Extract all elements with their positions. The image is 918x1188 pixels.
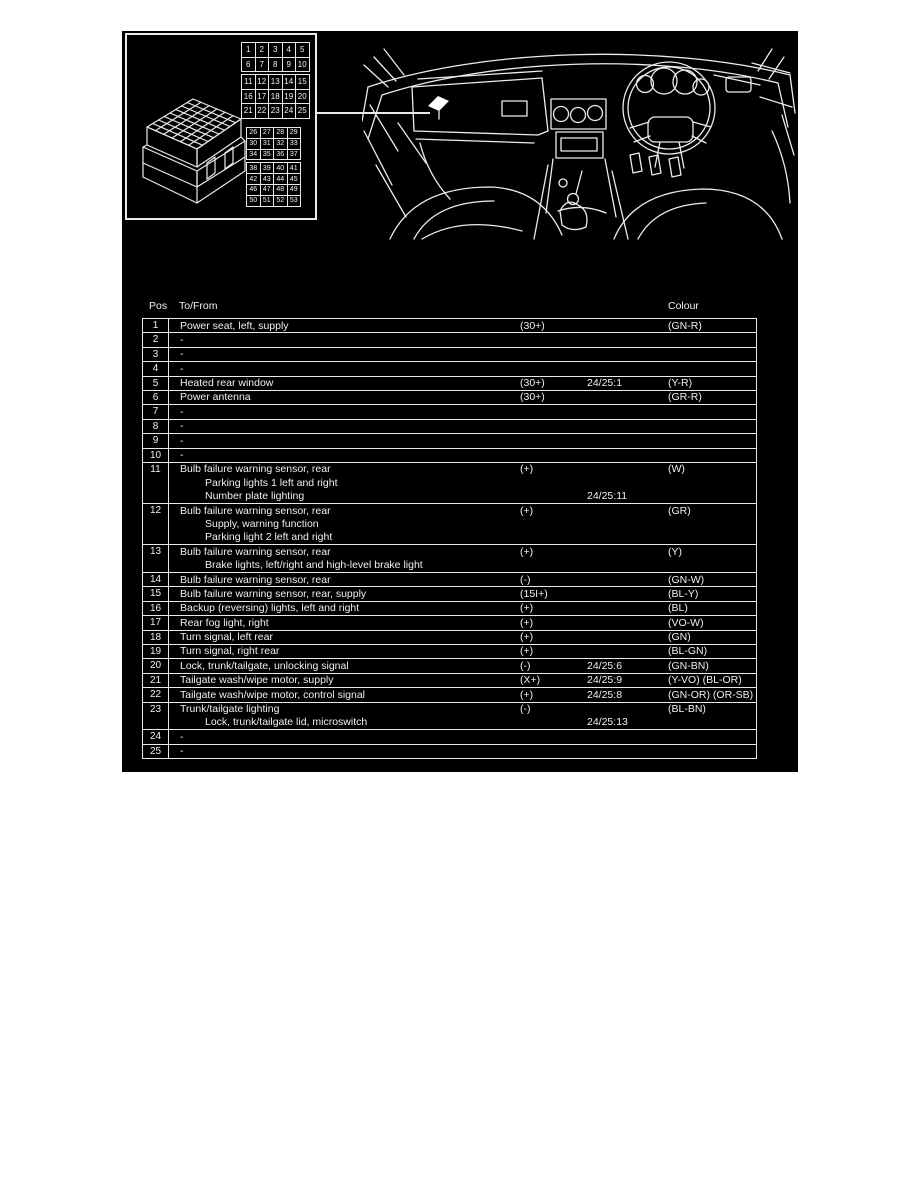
row-lines: - — [169, 348, 756, 361]
dashboard-illustration — [362, 35, 796, 241]
pos-cell: 13 — [143, 545, 169, 572]
signal-value: (-) — [520, 660, 531, 673]
wire-colour: (BL-GN) — [668, 645, 707, 658]
header-colour: Colour — [668, 300, 699, 312]
signal-value: (30+) — [520, 391, 545, 404]
pin-number-cell: 37 — [287, 149, 302, 161]
row-lines: Bulb failure warning sensor, rear, suppl… — [169, 587, 756, 600]
to-from-text: Turn signal, right rear — [180, 645, 279, 658]
pos-cell: 1 — [143, 319, 169, 332]
pin-number-cell: 3 — [268, 42, 283, 58]
row-lines: - — [169, 405, 756, 418]
wire-colour: (Y-VO) (BL-OR) — [668, 674, 742, 687]
pos-cell: 5 — [143, 377, 169, 390]
pin-grid-row: 2122232425 — [241, 103, 310, 119]
to-from-text: Tailgate wash/wipe motor, supply — [180, 674, 334, 687]
row-line: Parking lights 1 left and right — [169, 476, 756, 489]
table-row: 1Power seat, left, supply(30+)(GN-R) — [143, 319, 756, 332]
pos-cell: 11 — [143, 463, 169, 503]
table-row: 20Lock, trunk/tailgate, unlocking signal… — [143, 658, 756, 672]
row-lines: - — [169, 333, 756, 346]
header-pos: Pos — [149, 300, 167, 312]
pin-grid-1-25: 1234567891011121314151617181920212223242… — [241, 42, 310, 119]
wire-colour: (GN) — [668, 631, 691, 644]
row-lines: - — [169, 362, 756, 375]
row-lines: Turn signal, right rear(+)(BL-GN) — [169, 645, 756, 658]
table-header: Pos To/From Colour — [142, 300, 755, 316]
to-from-text: Bulb failure warning sensor, rear — [180, 463, 331, 476]
row-line: Turn signal, left rear(+)(GN) — [169, 631, 756, 644]
row-line: Bulb failure warning sensor, rear(+)(W) — [169, 463, 756, 476]
wiring-ref: 24/25:9 — [587, 674, 622, 687]
pos-cell: 23 — [143, 703, 169, 730]
to-from-text: Number plate lighting — [205, 490, 304, 503]
pin-number-cell: 2 — [255, 42, 270, 58]
row-lines: Heated rear window(30+)24/25:1(Y-R) — [169, 377, 756, 390]
row-line: Bulb failure warning sensor, rear(+)(Y) — [169, 545, 756, 558]
to-from-text: Tailgate wash/wipe motor, control signal — [180, 689, 365, 702]
table-row: 2- — [143, 332, 756, 346]
wiring-ref: 24/25:6 — [587, 660, 622, 673]
table-row: 6Power antenna(30+)(GR-R) — [143, 390, 756, 404]
to-from-text: Trunk/tailgate lighting — [180, 703, 279, 716]
pin-number-cell: 35 — [260, 149, 275, 161]
to-from-text: Bulb failure warning sensor, rear — [180, 546, 331, 559]
signal-value: (-) — [520, 703, 531, 716]
pos-cell: 2 — [143, 333, 169, 346]
table-row: 12Bulb failure warning sensor, rear(+)(G… — [143, 503, 756, 544]
signal-value: (+) — [520, 602, 533, 615]
pos-cell: 19 — [143, 645, 169, 658]
to-from-text: Power antenna — [180, 391, 251, 404]
row-line: Number plate lighting24/25:11 — [169, 490, 756, 503]
to-from-text: Parking light 2 left and right — [205, 531, 332, 544]
table-row: 9- — [143, 433, 756, 447]
wiring-ref: 24/25:1 — [587, 377, 622, 390]
table-row: 3- — [143, 347, 756, 361]
table-row: 18Turn signal, left rear(+)(GN) — [143, 630, 756, 644]
row-line: Supply, warning function — [169, 517, 756, 530]
pin-table: 1Power seat, left, supply(30+)(GN-R)2-3-… — [142, 318, 757, 759]
signal-value: (+) — [520, 505, 533, 518]
wire-colour: (GN-W) — [668, 574, 704, 587]
pin-grid-row: 12345 — [241, 42, 310, 58]
row-line: Heated rear window(30+)24/25:1(Y-R) — [169, 377, 756, 390]
row-lines: Power antenna(30+)(GR-R) — [169, 391, 756, 404]
row-line: - — [169, 333, 756, 346]
row-lines: Bulb failure warning sensor, rear(+)(GR)… — [169, 504, 756, 544]
row-line: Bulb failure warning sensor, rear, suppl… — [169, 587, 756, 600]
table-row: 15Bulb failure warning sensor, rear, sup… — [143, 586, 756, 600]
row-line: - — [169, 449, 756, 462]
to-from-text: - — [180, 363, 184, 376]
wire-colour: (GN-BN) — [668, 660, 709, 673]
pin-number-cell: 8 — [268, 57, 283, 73]
pin-grid-row: 34353637 — [246, 149, 301, 161]
table-row: 22Tailgate wash/wipe motor, control sign… — [143, 687, 756, 701]
pin-number-cell: 34 — [246, 149, 261, 161]
table-row: 17Rear fog light, right(+)(VO-W) — [143, 615, 756, 629]
pos-cell: 20 — [143, 659, 169, 672]
pin-number-cell: 10 — [295, 57, 310, 73]
pos-cell: 12 — [143, 504, 169, 544]
pos-cell: 21 — [143, 674, 169, 687]
to-from-text: - — [180, 435, 184, 448]
pin-number-cell: 24 — [282, 103, 297, 119]
row-lines: Bulb failure warning sensor, rear(-)(GN-… — [169, 573, 756, 586]
row-lines: - — [169, 449, 756, 462]
table-row: 11Bulb failure warning sensor, rear(+)(W… — [143, 462, 756, 503]
pin-number-cell: 15 — [295, 74, 310, 90]
table-row: 23Trunk/tailgate lighting(-)(BL-BN)Lock,… — [143, 702, 756, 730]
pin-number-cell: 51 — [260, 195, 275, 207]
pin-number-cell: 23 — [268, 103, 283, 119]
to-from-text: Bulb failure warning sensor, rear — [180, 574, 331, 587]
signal-value: (+) — [520, 546, 533, 559]
pin-number-cell: 12 — [255, 74, 270, 90]
pin-number-cell: 52 — [273, 195, 288, 207]
pos-cell: 6 — [143, 391, 169, 404]
wire-colour: (BL-Y) — [668, 588, 698, 601]
pin-grid-row: 1617181920 — [241, 89, 310, 105]
to-from-text: Heated rear window — [180, 377, 273, 390]
row-lines: Bulb failure warning sensor, rear(+)(Y)B… — [169, 545, 756, 572]
pin-number-cell: 18 — [268, 89, 283, 105]
to-from-text: - — [180, 731, 184, 744]
pin-number-cell: 36 — [273, 149, 288, 161]
row-line: Turn signal, right rear(+)(BL-GN) — [169, 645, 756, 658]
pin-grid-row: 1112131415 — [241, 74, 310, 90]
pin-number-cell: 5 — [295, 42, 310, 58]
table-row: 19Turn signal, right rear(+)(BL-GN) — [143, 644, 756, 658]
table-row: 16Backup (reversing) lights, left and ri… — [143, 601, 756, 615]
to-from-text: Supply, warning function — [205, 518, 319, 531]
row-line: Brake lights, left/right and high-level … — [169, 559, 756, 572]
wiring-ref: 24/25:13 — [587, 716, 628, 729]
pos-cell: 9 — [143, 434, 169, 447]
pin-grid-26-53: 2627282930313233343536373839404142434445… — [246, 127, 301, 207]
row-line: - — [169, 420, 756, 433]
row-line: Tailgate wash/wipe motor, supply(X+)24/2… — [169, 674, 756, 687]
to-from-text: - — [180, 406, 184, 419]
row-line: Power seat, left, supply(30+)(GN-R) — [169, 319, 756, 332]
row-lines: Power seat, left, supply(30+)(GN-R) — [169, 319, 756, 332]
to-from-text: Lock, trunk/tailgate lid, microswitch — [205, 716, 367, 729]
to-from-text: Turn signal, left rear — [180, 631, 273, 644]
row-line: Backup (reversing) lights, left and righ… — [169, 602, 756, 615]
row-lines: - — [169, 745, 756, 758]
row-line: - — [169, 434, 756, 447]
wire-colour: (GR) — [668, 505, 691, 518]
to-from-text: - — [180, 449, 184, 462]
signal-value: (X+) — [520, 674, 540, 687]
pos-cell: 10 — [143, 449, 169, 462]
manual-page: { "colors": { "page_bg": "#ffffff", "pan… — [0, 0, 918, 1188]
signal-value: (+) — [520, 617, 533, 630]
pin-number-cell: 19 — [282, 89, 297, 105]
signal-value: (-) — [520, 574, 531, 587]
row-line: Tailgate wash/wipe motor, control signal… — [169, 688, 756, 701]
row-lines: Lock, trunk/tailgate, unlocking signal(-… — [169, 659, 756, 672]
pos-cell: 15 — [143, 587, 169, 600]
to-from-text: Brake lights, left/right and high-level … — [205, 559, 423, 572]
pin-number-cell: 13 — [268, 74, 283, 90]
wire-colour: (GN-OR) (OR-SB) — [668, 689, 753, 702]
row-line: - — [169, 730, 756, 743]
pin-number-cell: 20 — [295, 89, 310, 105]
pos-cell: 24 — [143, 730, 169, 743]
to-from-text: Lock, trunk/tailgate, unlocking signal — [180, 660, 349, 673]
signal-value: (+) — [520, 645, 533, 658]
row-lines: Backup (reversing) lights, left and righ… — [169, 602, 756, 615]
row-line: - — [169, 745, 756, 758]
row-lines: Turn signal, left rear(+)(GN) — [169, 631, 756, 644]
signal-value: (15I+) — [520, 588, 548, 601]
table-row: 7- — [143, 404, 756, 418]
row-lines: - — [169, 730, 756, 743]
pin-number-cell: 14 — [282, 74, 297, 90]
table-row: 5Heated rear window(30+)24/25:1(Y-R) — [143, 376, 756, 390]
to-from-text: Bulb failure warning sensor, rear — [180, 505, 331, 518]
row-line: Trunk/tailgate lighting(-)(BL-BN) — [169, 703, 756, 716]
pin-number-cell: 4 — [282, 42, 297, 58]
to-from-text: - — [180, 348, 184, 361]
pin-number-cell: 25 — [295, 103, 310, 119]
pin-number-cell: 17 — [255, 89, 270, 105]
wiring-ref: 24/25:8 — [587, 689, 622, 702]
pin-number-cell: 7 — [255, 57, 270, 73]
pin-number-cell: 1 — [241, 42, 256, 58]
pin-number-cell: 50 — [246, 195, 261, 207]
row-lines: Bulb failure warning sensor, rear(+)(W)P… — [169, 463, 756, 503]
table-row: 25- — [143, 744, 756, 758]
to-from-text: - — [180, 420, 184, 433]
pos-cell: 7 — [143, 405, 169, 418]
row-lines: Rear fog light, right(+)(VO-W) — [169, 616, 756, 629]
row-lines: - — [169, 434, 756, 447]
pos-cell: 22 — [143, 688, 169, 701]
wire-colour: (VO-W) — [668, 617, 704, 630]
table-row: 8- — [143, 419, 756, 433]
row-line: Power antenna(30+)(GR-R) — [169, 391, 756, 404]
pin-number-cell: 53 — [287, 195, 302, 207]
pos-cell: 14 — [143, 573, 169, 586]
wire-colour: (BL) — [668, 602, 688, 615]
pin-number-cell: 11 — [241, 74, 256, 90]
pos-cell: 17 — [143, 616, 169, 629]
location-flag-marker — [428, 96, 449, 119]
table-row: 13Bulb failure warning sensor, rear(+)(Y… — [143, 544, 756, 572]
header-to-from: To/From — [179, 300, 218, 312]
row-lines: Tailgate wash/wipe motor, supply(X+)24/2… — [169, 674, 756, 687]
pos-cell: 16 — [143, 602, 169, 615]
signal-value: (30+) — [520, 377, 545, 390]
pos-cell: 3 — [143, 348, 169, 361]
row-line: Bulb failure warning sensor, rear(-)(GN-… — [169, 573, 756, 586]
row-lines: - — [169, 420, 756, 433]
signal-value: (+) — [520, 631, 533, 644]
pin-number-cell: 22 — [255, 103, 270, 119]
row-lines: Trunk/tailgate lighting(-)(BL-BN)Lock, t… — [169, 703, 756, 730]
signal-value: (30+) — [520, 320, 545, 333]
wire-colour: (GR-R) — [668, 391, 702, 404]
signal-value: (+) — [520, 463, 533, 476]
row-line: Lock, trunk/tailgate lid, microswitch24/… — [169, 716, 756, 729]
scanned-page-panel: 1234567891011121314151617181920212223242… — [122, 31, 798, 772]
pos-cell: 18 — [143, 631, 169, 644]
to-from-text: Bulb failure warning sensor, rear, suppl… — [180, 588, 366, 601]
pin-grid-row: 678910 — [241, 57, 310, 73]
row-line: - — [169, 362, 756, 375]
wire-colour: (W) — [668, 463, 685, 476]
signal-value: (+) — [520, 689, 533, 702]
pin-grid-row: 50515253 — [246, 195, 301, 207]
row-line: Rear fog light, right(+)(VO-W) — [169, 616, 756, 629]
to-from-text: Parking lights 1 left and right — [205, 477, 338, 490]
to-from-text: - — [180, 334, 184, 347]
wire-colour: (BL-BN) — [668, 703, 706, 716]
pin-number-cell: 21 — [241, 103, 256, 119]
row-line: - — [169, 348, 756, 361]
wire-colour: (Y-R) — [668, 377, 692, 390]
connector-drawing — [139, 89, 251, 215]
row-lines: Tailgate wash/wipe motor, control signal… — [169, 688, 756, 701]
to-from-text: Backup (reversing) lights, left and righ… — [180, 602, 359, 615]
row-line: Lock, trunk/tailgate, unlocking signal(-… — [169, 659, 756, 672]
row-line: - — [169, 405, 756, 418]
pos-cell: 8 — [143, 420, 169, 433]
wire-colour: (GN-R) — [668, 320, 702, 333]
table-row: 4- — [143, 361, 756, 375]
to-from-text: Rear fog light, right — [180, 617, 269, 630]
pos-cell: 25 — [143, 745, 169, 758]
pin-number-cell: 16 — [241, 89, 256, 105]
row-line: Parking light 2 left and right — [169, 531, 756, 544]
row-line: Bulb failure warning sensor, rear(+)(GR) — [169, 504, 756, 517]
pin-number-cell: 9 — [282, 57, 297, 73]
table-row: 10- — [143, 448, 756, 462]
pin-number-cell: 6 — [241, 57, 256, 73]
wire-colour: (Y) — [668, 546, 682, 559]
table-row: 14Bulb failure warning sensor, rear(-)(G… — [143, 572, 756, 586]
to-from-text: - — [180, 745, 184, 758]
pos-cell: 4 — [143, 362, 169, 375]
table-row: 24- — [143, 729, 756, 743]
wiring-ref: 24/25:11 — [587, 490, 627, 503]
to-from-text: Power seat, left, supply — [180, 320, 289, 333]
table-row: 21Tailgate wash/wipe motor, supply(X+)24… — [143, 673, 756, 687]
